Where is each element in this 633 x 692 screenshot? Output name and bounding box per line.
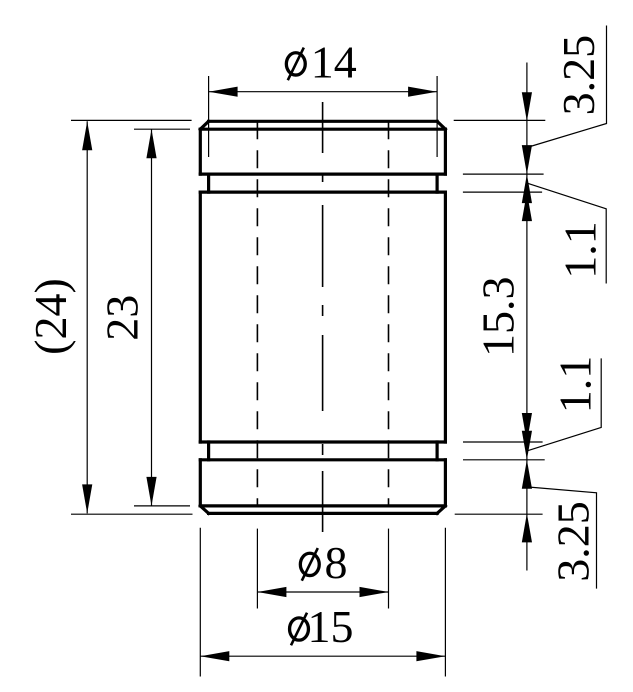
svg-text:1.1: 1.1	[550, 356, 601, 414]
svg-text:3.25: 3.25	[548, 501, 599, 582]
svg-text:15.3: 15.3	[473, 277, 524, 358]
svg-text:15: 15	[308, 601, 354, 652]
svg-text:8: 8	[325, 537, 348, 588]
svg-text:1.1: 1.1	[555, 221, 606, 279]
svg-text:3.25: 3.25	[553, 35, 604, 116]
svg-text:(24): (24)	[25, 278, 76, 355]
svg-text:23: 23	[97, 295, 148, 341]
svg-text:14: 14	[311, 37, 357, 88]
